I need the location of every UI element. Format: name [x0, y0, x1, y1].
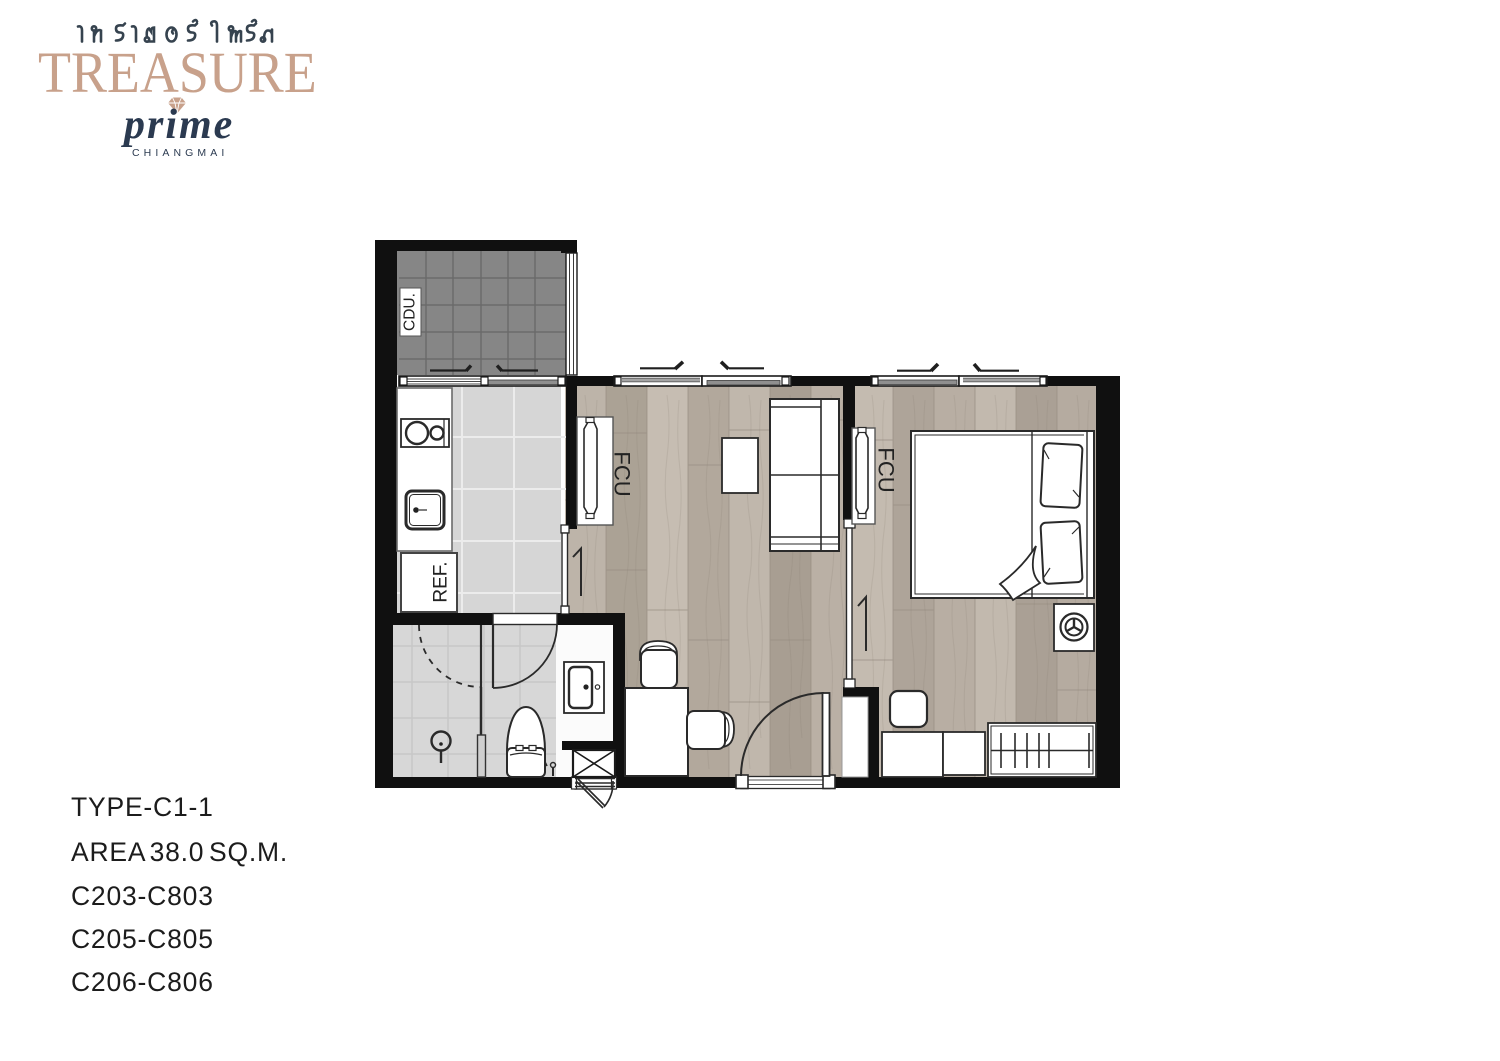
svg-text:CDU.: CDU. — [402, 293, 419, 331]
svg-text:FCU: FCU — [610, 451, 635, 496]
svg-text:REF.: REF. — [431, 561, 452, 602]
svg-text:FCU: FCU — [874, 447, 899, 492]
